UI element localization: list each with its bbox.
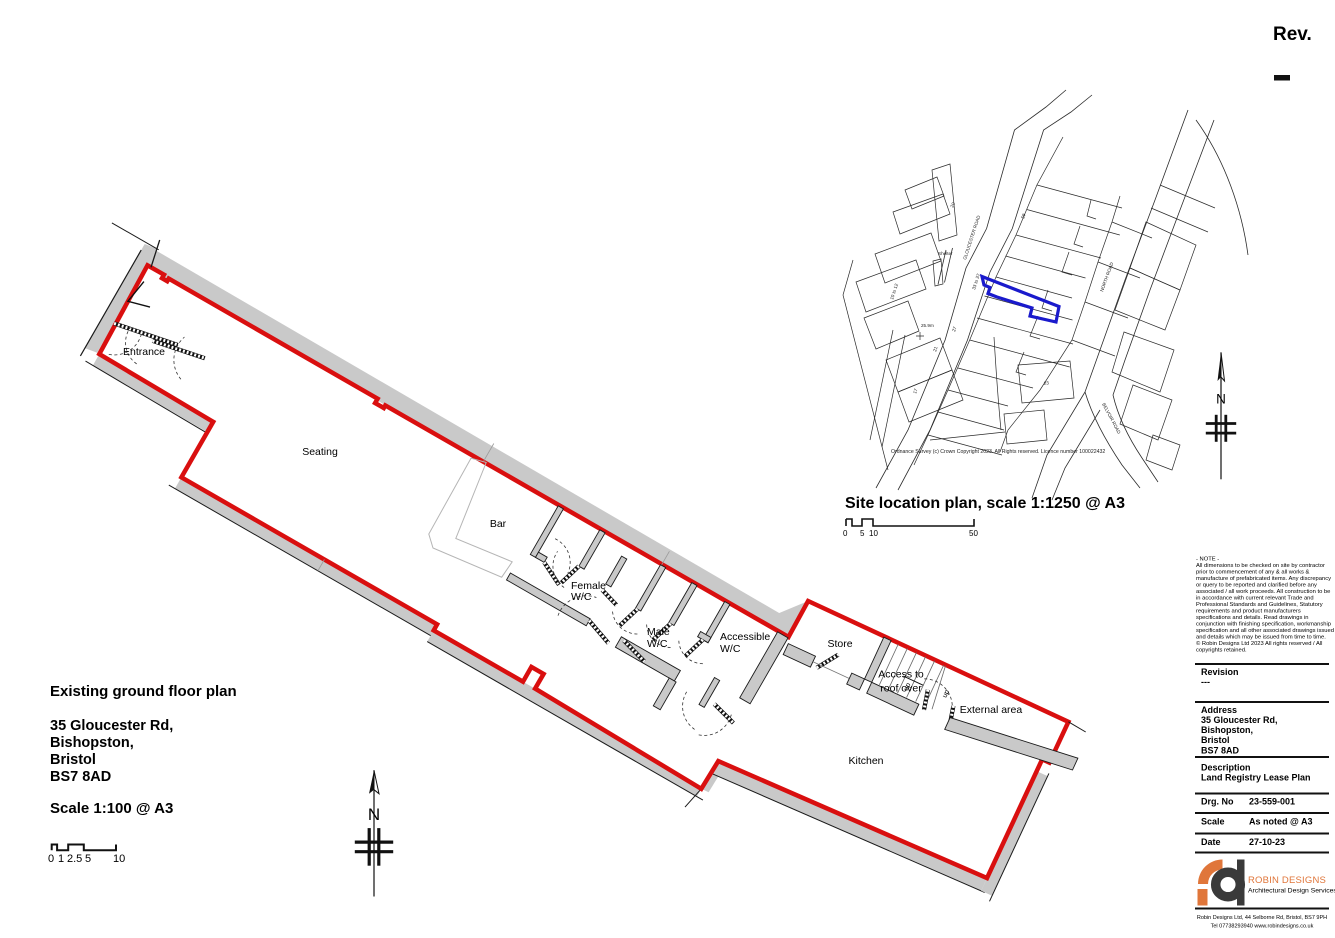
svg-text:roof over: roof over xyxy=(880,683,922,695)
svg-text:Scale 1:100 @ A3: Scale 1:100 @ A3 xyxy=(50,800,173,817)
svg-text:Bristol: Bristol xyxy=(1201,735,1230,745)
svg-text:manufacture of prefabricated i: manufacture of prefabricated items. Any … xyxy=(1196,576,1331,582)
svg-text:59: 59 xyxy=(1020,212,1026,219)
svg-text:50: 50 xyxy=(969,529,978,538)
svg-text:ROBIN DESIGNS: ROBIN DESIGNS xyxy=(1248,875,1326,886)
svg-text:Kitchen: Kitchen xyxy=(848,755,883,767)
svg-text:specifications and details. Re: specifications and details. Read drawing… xyxy=(1196,615,1308,621)
svg-text:Bar: Bar xyxy=(490,518,507,530)
svg-text:W/C: W/C xyxy=(647,638,668,650)
svg-text:23: 23 xyxy=(1043,380,1049,386)
svg-text:23-559-001: 23-559-001 xyxy=(1249,797,1295,807)
svg-text:Architectural Design Services: Architectural Design Services xyxy=(1248,888,1335,895)
svg-text:10: 10 xyxy=(869,529,878,538)
svg-text:copyrights retained.: copyrights retained. xyxy=(1196,648,1247,654)
svg-text:Existing ground floor plan: Existing ground floor plan xyxy=(50,683,237,700)
svg-text:External area: External area xyxy=(960,704,1023,716)
svg-text:0: 0 xyxy=(843,529,848,538)
svg-text:Address: Address xyxy=(1201,705,1237,715)
svg-text:BS7 8AD: BS7 8AD xyxy=(50,769,111,785)
svg-text:25.9m: 25.9m xyxy=(921,323,934,328)
svg-text:Store: Store xyxy=(827,638,852,650)
svg-text:Scale: Scale xyxy=(1201,817,1225,827)
svg-text:N: N xyxy=(1216,392,1226,407)
svg-text:33 to 37: 33 to 37 xyxy=(971,273,981,291)
svg-text:Accessible: Accessible xyxy=(720,631,770,643)
svg-text:10: 10 xyxy=(113,853,125,865)
svg-text:2.5: 2.5 xyxy=(67,853,82,865)
svg-text:Bishopston,: Bishopston, xyxy=(1201,725,1253,735)
svg-text:5: 5 xyxy=(85,853,91,865)
svg-text:in accordance with current rel: in accordance with current relevant Trad… xyxy=(1196,596,1314,602)
svg-text:associated / all work proceeds: associated / all work proceeds. All cons… xyxy=(1196,589,1330,595)
svg-text:Ordnance Survey (c) Crown Copy: Ordnance Survey (c) Crown Copyright 2023… xyxy=(891,449,1105,455)
svg-text:35 Gloucester Rd,: 35 Gloucester Rd, xyxy=(50,718,173,734)
svg-text:10 to 12: 10 to 12 xyxy=(889,283,899,301)
svg-text:W/C: W/C xyxy=(720,643,741,655)
svg-text:Professional Standards and Gu: Professional Standards and Guidelines, S… xyxy=(1196,602,1323,608)
svg-text:Entrance: Entrance xyxy=(123,346,165,358)
svg-text:20: 20 xyxy=(949,201,956,208)
svg-text:conjunction with finishing spe: conjunction with finishing specification… xyxy=(1196,622,1331,628)
svg-text:Bishopston,: Bishopston, xyxy=(50,735,134,751)
svg-text:requirements and product manuf: requirements and product manufacturers xyxy=(1196,609,1301,615)
svg-text:Land Registry Lease Plan: Land Registry Lease Plan xyxy=(1201,773,1311,783)
svg-text:27-10-23: 27-10-23 xyxy=(1249,837,1285,847)
svg-text:W/C: W/C xyxy=(571,591,592,603)
svg-text:Access to: Access to xyxy=(878,669,924,681)
svg-text:All dimensions to be checked o: All dimensions to be checked on site by … xyxy=(1196,563,1325,569)
svg-text:prior to commencement of any &: prior to commencement of any & all works… xyxy=(1196,570,1310,576)
svg-text:Tel 07738293940 www.robindesig: Tel 07738293940 www.robindesigns.co.uk xyxy=(1211,924,1314,930)
svg-text:and details which may be issue: and details which may be issued from tim… xyxy=(1196,635,1326,641)
svg-text:Robin Designs Ltd, 44 Selborne: Robin Designs Ltd, 44 Selborne Rd, Brist… xyxy=(1197,915,1327,921)
svg-text:5: 5 xyxy=(860,529,865,538)
svg-text:- NOTE -: - NOTE - xyxy=(1196,557,1219,563)
svg-text:27: 27 xyxy=(951,325,957,332)
svg-text:specification and all other as: specification and all other associated d… xyxy=(1196,628,1334,634)
svg-text:35 Gloucester Rd,: 35 Gloucester Rd, xyxy=(1201,715,1278,725)
svg-text:BS7 8AD: BS7 8AD xyxy=(1201,745,1240,755)
svg-text:Revision: Revision xyxy=(1201,667,1239,677)
svg-text:N: N xyxy=(368,805,380,824)
svg-text:Site location plan, scale 1:12: Site location plan, scale 1:1250 @ A3 xyxy=(845,495,1125,512)
svg-text:© Robin Designs Ltd 2023 All r: © Robin Designs Ltd 2023 All rights rese… xyxy=(1196,640,1322,647)
svg-text:Bristol: Bristol xyxy=(50,752,96,768)
svg-text:21: 21 xyxy=(932,345,938,352)
svg-text:Drg. No: Drg. No xyxy=(1201,797,1234,807)
svg-text:Shelter: Shelter xyxy=(938,251,953,256)
svg-text:---: --- xyxy=(1201,677,1210,687)
svg-text:Rev.: Rev. xyxy=(1273,24,1312,45)
svg-text:1: 1 xyxy=(58,853,64,865)
svg-text:17: 17 xyxy=(912,387,918,394)
svg-text:Seating: Seating xyxy=(302,446,338,458)
svg-text:As noted @ A3: As noted @ A3 xyxy=(1249,817,1312,827)
svg-text:or query to be reported and cl: or query to be reported and clarified be… xyxy=(1196,583,1317,589)
svg-text:Description: Description xyxy=(1201,763,1251,773)
svg-text:BELVOIR ROAD: BELVOIR ROAD xyxy=(1101,402,1122,435)
svg-text:Male: Male xyxy=(647,626,670,638)
svg-text:0: 0 xyxy=(48,853,54,865)
svg-text:GLOUCESTER ROAD: GLOUCESTER ROAD xyxy=(962,214,981,260)
svg-text:Date: Date xyxy=(1201,837,1221,847)
